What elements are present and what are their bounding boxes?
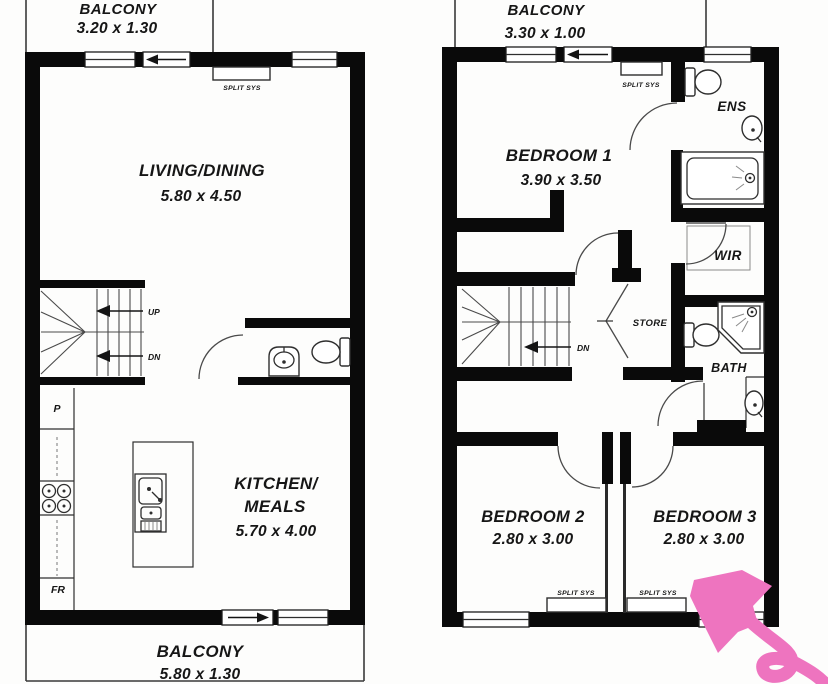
door-arc — [632, 446, 673, 487]
bath-label: BATH — [711, 361, 747, 375]
partition-wall — [623, 484, 626, 613]
partition-wall — [605, 484, 608, 613]
window — [85, 52, 135, 67]
dn-label: DN — [577, 343, 590, 353]
wall-segment — [671, 208, 764, 222]
basin-icon — [745, 391, 763, 417]
bedroom1-dim: 3.90 x 3.50 — [521, 172, 602, 189]
window — [292, 52, 337, 67]
kitchen-label-1: KITCHEN/ — [234, 474, 319, 493]
kitchen-island — [133, 442, 193, 567]
toilet-icon — [684, 323, 719, 347]
basin-icon — [269, 347, 299, 376]
store-label: STORE — [633, 318, 668, 329]
bedroom2-label: BEDROOM 2 — [481, 508, 585, 526]
fridge-label: FR — [51, 584, 65, 596]
sink-icon — [139, 478, 162, 531]
balcony-top-dim: 3.20 x 1.30 — [77, 20, 158, 37]
bedroom1-door-wall — [457, 190, 632, 277]
bedroom3-label: BEDROOM 3 — [653, 508, 757, 526]
living-dining-label: LIVING/DINING — [139, 161, 265, 180]
up-label: UP — [148, 307, 160, 317]
balcony-door — [564, 47, 612, 62]
wir-label: WIR — [714, 248, 742, 263]
floor-plan-ground: SPLIT SYS LIVING/DINING 5.80 x 4.50 UP — [25, 0, 365, 683]
wall-segment — [671, 263, 685, 382]
split-system-unit: SPLIT SYS — [621, 62, 662, 89]
staircase-icon: DN — [453, 272, 590, 381]
balcony-door — [143, 52, 190, 67]
staircase-icon: UP DN — [40, 280, 161, 385]
kitchen-bench: P FR — [40, 388, 74, 610]
toilet-icon — [685, 68, 721, 96]
kitchen-dim: 5.70 x 4.00 — [236, 523, 317, 540]
balcony-top-label: BALCONY — [80, 1, 159, 18]
door-arc — [658, 381, 703, 426]
ens-label: ENS — [717, 99, 746, 114]
cooktop-icon — [43, 485, 71, 513]
split-sys-label: SPLIT SYS — [223, 85, 261, 92]
kitchen-label-2: MEALS — [244, 497, 306, 516]
bedroom3-dim: 2.80 x 3.00 — [663, 531, 745, 548]
shower-icon — [718, 302, 764, 353]
down-arrow-icon — [524, 341, 571, 353]
window — [463, 612, 529, 627]
upper-balcony-label: BALCONY — [508, 2, 587, 19]
split-sys-top-label: SPLIT SYS — [622, 82, 660, 89]
powder-room — [199, 318, 350, 385]
floor-plan-upper: BALCONY 3.30 x 1.00 SPLIT SYS — [442, 0, 779, 627]
door-arc — [630, 103, 677, 150]
door-arc — [576, 233, 618, 275]
pink-arrow-annotation — [690, 570, 828, 684]
bedroom3-split-label: SPLIT SYS — [639, 590, 677, 597]
bedroom2-split-label: SPLIT SYS — [557, 590, 595, 597]
split-system-unit: SPLIT SYS — [547, 590, 606, 612]
balcony-bottom-label: BALCONY — [157, 642, 245, 661]
door-arc — [199, 335, 243, 379]
basin-icon — [742, 116, 762, 142]
window — [278, 610, 328, 625]
dn-label: DN — [148, 352, 161, 362]
window — [506, 47, 556, 62]
balcony-bottom-dim: 5.80 x 1.30 — [160, 666, 241, 683]
toilet-icon — [312, 338, 350, 366]
bedroom2-dim: 2.80 x 3.00 — [492, 531, 574, 548]
split-system-unit: SPLIT SYS — [213, 67, 270, 92]
door-arc — [558, 446, 600, 488]
window — [704, 47, 751, 62]
balcony-door — [222, 610, 273, 625]
upper-balcony-dim: 3.30 x 1.00 — [505, 25, 586, 42]
living-dining-dim: 5.80 x 4.50 — [161, 188, 242, 205]
bathtub-icon — [681, 152, 764, 204]
split-system-unit: SPLIT SYS — [627, 590, 686, 612]
pantry-label: P — [53, 403, 61, 415]
bedroom1-label: BEDROOM 1 — [506, 146, 613, 165]
floorplan-image: SPLIT SYS LIVING/DINING 5.80 x 4.50 UP — [0, 0, 828, 684]
